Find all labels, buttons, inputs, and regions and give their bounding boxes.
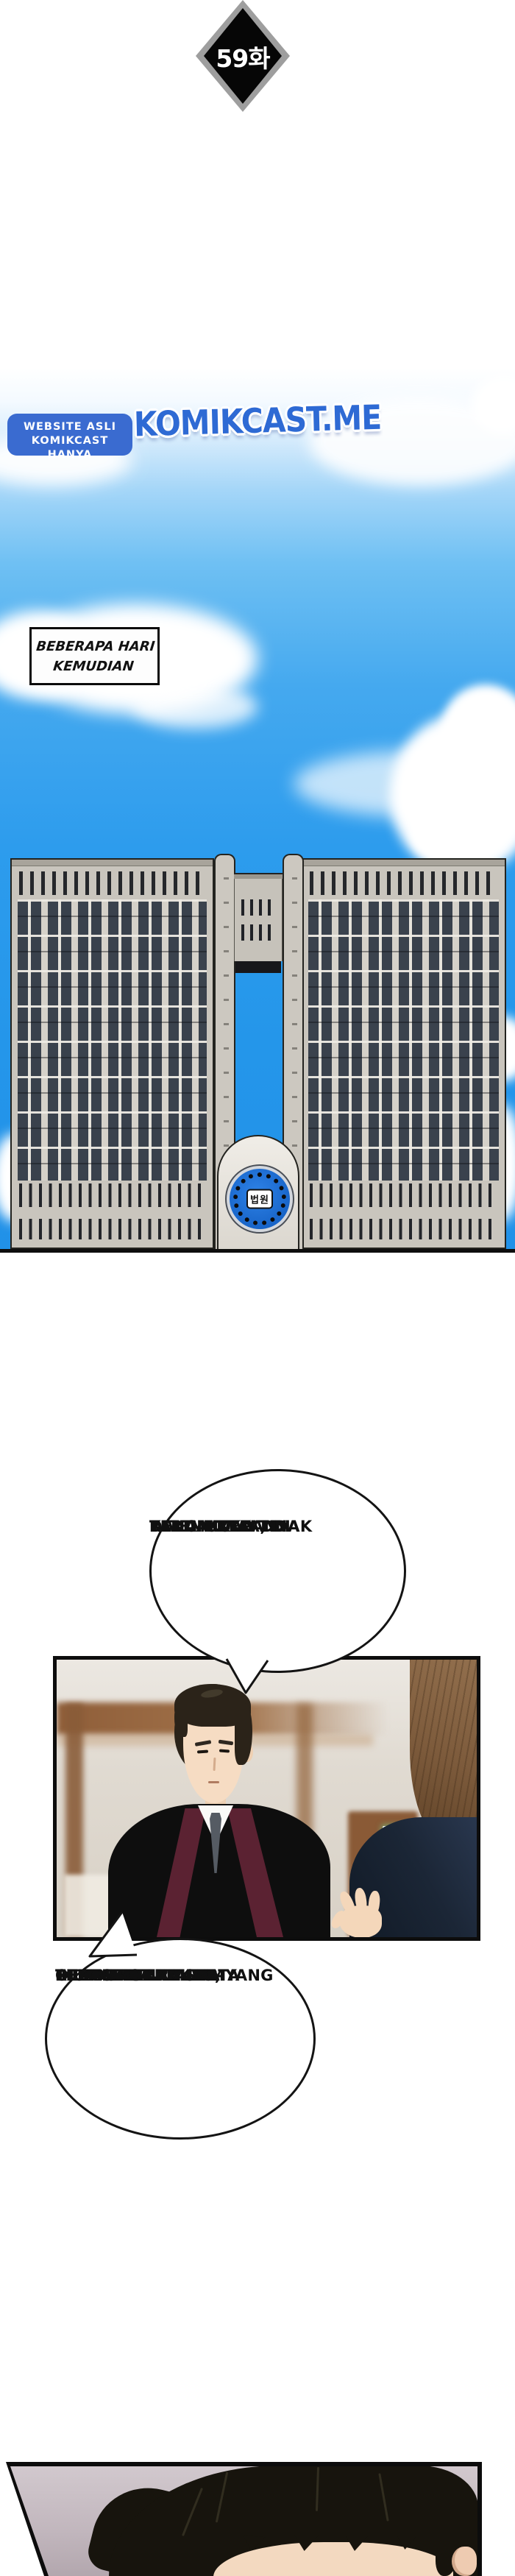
scene-caption-box: BEBERAPA HARI KEMUDIAN [29,627,160,685]
cloud [412,810,478,861]
tower-window-grid [308,899,499,1181]
tower-top-windows [310,871,497,895]
scene-caption-text: BEBERAPA HARI KEMUDIAN [29,629,160,683]
panel-content [0,2457,515,2576]
courthouse-left-tower [10,858,214,1249]
watermark-site-name: KOMIKCAST.ME [133,397,377,444]
judge-head [173,1684,255,1808]
bridge-window-row [241,924,275,941]
judge-hair-side [174,1703,188,1737]
panel-border-bottom [0,1249,515,1253]
tower-parapet [302,860,505,866]
episode-number: 59화 [196,0,290,112]
watermark-line-1: WEBSITE ASLI [7,420,132,434]
cloud [132,684,257,729]
court-emblem: 법원 [225,1164,294,1234]
tower-base [302,1181,505,1248]
speech-bubble-1-tail [221,1657,274,1696]
watermark-line-2: KOMIKCAST HANYA [7,434,132,462]
courthouse-bridge [234,879,283,961]
defendant-panel [0,2457,515,2576]
sky-courthouse-panel: WEBSITE ASLI KOMIKCAST HANYA KOMIKCAST.M… [0,368,515,1253]
speech-bubble-2-tail [79,1909,141,1959]
defendant-ear [452,2547,477,2576]
speech-bubble-1 [149,1469,406,1673]
caption-line-2: KEMUDIAN [29,657,157,676]
courtroom-panel [53,1656,480,1941]
tower-base [12,1181,213,1248]
hand-palm [339,1906,382,1938]
base-window-row [310,1219,497,1239]
tower-top-windows [19,871,205,895]
bubble-line: PEMBUNUHAN INI. [55,1966,218,1986]
caption-line-1: BEBERAPA HARI [32,637,160,657]
bridge-window-row [241,899,275,916]
bridge-shadow [235,961,281,973]
court-emblem-label: 법원 [246,1189,273,1209]
bridge-cap [234,873,283,879]
base-window-row [19,1219,205,1239]
base-window-row [19,1183,205,1207]
courthouse-right-tower [301,858,506,1249]
episode-badge: 59화 [196,0,290,112]
bubble-line: TERDAKWA. [149,1516,255,1538]
webtoon-page: 59화 WEBSITE ASLI KOMIKCAST HANYA KOMIKCA… [0,0,515,2576]
listener-hair [410,1656,480,1844]
tower-window-grid [18,899,207,1181]
tower-parapet [12,860,213,866]
judge-mouth [208,1781,219,1783]
watermark-badge: WEBSITE ASLI KOMIKCAST HANYA [7,414,132,456]
judge-hand [336,1897,388,1937]
base-window-row [310,1183,497,1207]
